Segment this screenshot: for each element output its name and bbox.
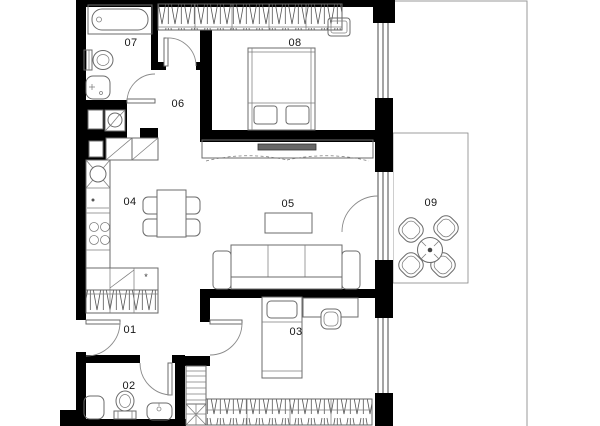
room-door: [210, 320, 242, 355]
tv-screen: [258, 144, 316, 150]
sink: [147, 403, 172, 420]
tv-sideboard: [202, 140, 373, 161]
balcony-door-swing-arc: [342, 196, 378, 232]
wall-segment: [375, 393, 393, 426]
wardrobe: [86, 290, 158, 313]
floor-plan: *: [0, 0, 600, 426]
wc-door: [140, 363, 172, 395]
sofa-seats: [231, 245, 342, 277]
balcony-round-table: [418, 238, 443, 263]
sofa: [213, 245, 360, 289]
sofa-armrest: [213, 251, 231, 289]
room-label-06: 06: [171, 98, 184, 110]
wall-segment: [172, 355, 185, 363]
dining-table: [157, 190, 186, 237]
dining-set: [143, 190, 200, 237]
bathroom-door: [127, 74, 155, 103]
wall-segment: [86, 100, 127, 108]
bedroom-08: [158, 4, 350, 130]
room-label-02: 02: [122, 380, 135, 392]
room-label-04: 04: [123, 196, 136, 208]
floor-plan-drawing: *: [0, 0, 600, 426]
wall-segment: [200, 30, 212, 142]
wall-segment: [375, 98, 393, 172]
wall-segment: [60, 410, 76, 426]
window-kidsroom: [375, 318, 393, 393]
vent-fan-symbol: [105, 110, 125, 131]
wall-segment: [373, 0, 395, 23]
freezer-symbol: *: [144, 272, 148, 282]
coffee-table: [265, 213, 312, 233]
sink: [86, 76, 110, 99]
closet-door: [164, 38, 196, 66]
room-label-05: 05: [281, 198, 294, 210]
window-bedroom: [375, 23, 393, 98]
shaft: [84, 396, 104, 419]
wall-segment: [76, 419, 186, 426]
sofa-backrest: [231, 277, 342, 289]
wall-segment: [175, 356, 185, 426]
room-label-09: 09: [424, 197, 437, 209]
shaft: [89, 141, 103, 157]
room-label-07: 07: [124, 37, 137, 49]
shaft: [88, 110, 103, 129]
room-label-01: 01: [123, 324, 136, 336]
double-bed: [248, 48, 315, 130]
hall-01: [86, 290, 158, 356]
wall-segment: [76, 0, 86, 320]
living-room: [202, 140, 378, 289]
entrance-door: [86, 320, 120, 356]
kids-room-03: [186, 297, 372, 425]
wall-segment: [375, 260, 393, 318]
wall-segment: [200, 292, 210, 322]
bathroom-07: [84, 5, 155, 103]
toilet: [84, 50, 113, 70]
sofa-armrest: [342, 251, 360, 289]
plot-boundary-line: [395, 1, 527, 426]
shelf-niche: [186, 366, 206, 425]
wall-segment: [76, 355, 140, 363]
room-label-03: 03: [289, 326, 302, 338]
window-living: [375, 172, 393, 260]
toilet: [114, 391, 136, 419]
room-label-08: 08: [288, 37, 301, 49]
wardrobe: [206, 399, 372, 425]
bathtub: [88, 5, 152, 34]
kitchen: *: [86, 160, 158, 290]
wardrobe: [158, 4, 342, 30]
desk-chair: [321, 309, 341, 329]
